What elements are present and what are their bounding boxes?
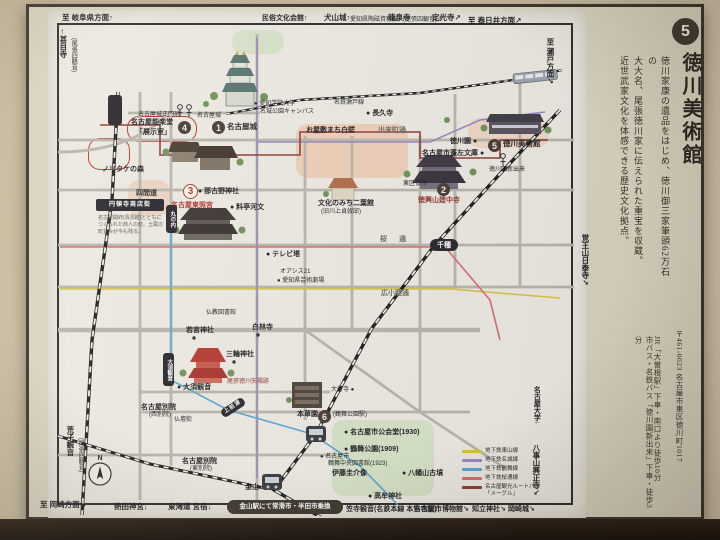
numbered-spot-badge: 6 bbox=[318, 410, 331, 423]
map-label: 名古屋別院 bbox=[182, 458, 217, 465]
legend-line-swatch bbox=[462, 450, 482, 453]
map-label: ● 大須観音 bbox=[177, 384, 211, 391]
photo-of-information-sign: N 至 岐阜県方面↑民俗文化会館↑犬山城↑愛知県陶磁資料館↗龍泉寺(尾張四観音)… bbox=[0, 0, 720, 540]
map-label: 尾張徳川矢場跡 bbox=[227, 379, 269, 385]
panel-title: 徳川美術館 bbox=[676, 52, 705, 167]
legend-line-swatch bbox=[462, 459, 482, 462]
toshogu-shrine-illustration bbox=[178, 208, 238, 240]
map-label: 至 岡崎方面↘ bbox=[40, 501, 86, 509]
map-label: 仏教図書館 bbox=[206, 310, 236, 316]
legend-row: 名古屋観光ルートバス 「メーグル」 bbox=[462, 484, 540, 498]
legend-label: 地下鉄鶴舞線 bbox=[485, 466, 518, 473]
map-label: 桜 通 bbox=[380, 236, 411, 243]
train-station-icon-kanayama bbox=[262, 474, 282, 490]
map-label: ● 那古野神社 bbox=[198, 188, 239, 195]
map-label: 熱田神宮↓ bbox=[114, 503, 148, 511]
panel-description-line-3: 近世武家文化を体感できる歴史文化拠点。 bbox=[618, 56, 631, 286]
legend-label: 地下鉄東山線 bbox=[485, 448, 518, 455]
noh-theater-illustration bbox=[168, 142, 238, 170]
osu-kannon-illustration bbox=[188, 348, 228, 383]
map-label: 覚王山日泰寺↗ bbox=[581, 234, 589, 285]
map-label: (西別院) bbox=[149, 412, 171, 418]
map-label: ● 料亭河文 bbox=[230, 204, 264, 211]
map-label: (東別院) bbox=[190, 466, 212, 472]
map-label: 名古屋開府(清須越)とともに bbox=[98, 216, 161, 221]
map-label: 伊藤圭介像 bbox=[332, 470, 367, 477]
map-label: 名古屋東照宮 bbox=[171, 202, 213, 209]
legend-row: 地下鉄東山線 bbox=[462, 448, 518, 455]
station-plate: 金山駅にて常滑市・半田市乗換 bbox=[227, 500, 343, 514]
legend-line-swatch bbox=[462, 477, 482, 480]
map-label: ←甚目寺 bbox=[59, 28, 67, 58]
station-plate: 丸の内 bbox=[166, 205, 177, 233]
map-label: 徳興山建中寺 bbox=[418, 197, 460, 204]
legend-label: 地下鉄桜通線 bbox=[485, 475, 518, 482]
numbered-spot-badge: 2 bbox=[437, 183, 450, 196]
map-label: 出来町通 bbox=[378, 127, 406, 134]
map-label: (尾張四観音) bbox=[77, 438, 83, 472]
map-label: ● 八幡山古墳 bbox=[402, 470, 443, 477]
map-label: ● 名古屋市公会堂(1930) bbox=[344, 429, 419, 436]
legend-line-swatch bbox=[462, 468, 482, 471]
legend-label: 名古屋観光ルートバス 「メーグル」 bbox=[485, 484, 540, 498]
map-label: ● 名古屋市 bbox=[320, 454, 349, 460]
map-label: ● 高牟神社 bbox=[368, 493, 402, 500]
map-label: お屋敷まち白壁 bbox=[306, 127, 355, 134]
map-label: 徳川美術館 bbox=[503, 140, 541, 148]
panel-description-line-1: 徳川家康の遺品をはじめ、徳川御三家筆頭62万石の bbox=[646, 56, 672, 286]
map-label: 名古屋市博物館↘ bbox=[414, 506, 469, 513]
map-label: (尾張四観音) bbox=[70, 38, 76, 72]
map-label: 大行寺 ● bbox=[331, 387, 354, 393]
map-label: 名城公園キャンパス bbox=[260, 109, 314, 115]
map-label: 至 春日井方面↗ bbox=[468, 17, 521, 25]
panel-description-line-2: 大大名、尾張徳川家に伝えられた重宝を収蔵。 bbox=[632, 56, 645, 286]
map-label: 名鉄瀬戸線 bbox=[334, 100, 364, 106]
map-label: ● 鶴舞公園(1909) bbox=[344, 446, 398, 453]
numbered-spot-badge: 5 bbox=[488, 139, 501, 152]
map-label: 若宮神社 bbox=[186, 327, 214, 334]
compass-n-letter: N bbox=[97, 455, 102, 462]
futabakan-illustration bbox=[328, 178, 358, 200]
map-label: (旧川上貞奴邸) bbox=[321, 209, 361, 215]
map-label: 広小路通 bbox=[381, 290, 409, 297]
floor-shadow-band bbox=[0, 519, 720, 540]
map-label: 徳川園 ● bbox=[450, 138, 477, 145]
panel-access-line-2: 市バス・名鉄バス「徳川園新出来」下車・徒歩3分 bbox=[633, 336, 655, 516]
station-plate: 千種 bbox=[430, 239, 458, 251]
map-label: 岡崎城↘ bbox=[508, 506, 535, 513]
map-label: 徳川園新出来 bbox=[489, 167, 525, 173]
map-label: ● 愛知県芸術劇場 bbox=[277, 278, 324, 284]
map-label: 名古屋城正門前 bbox=[138, 112, 180, 118]
panel-address: 〒461-0023 名古屋市東区徳川町1017 bbox=[674, 330, 685, 510]
map-label: ● テレビ塔 bbox=[266, 251, 300, 258]
compass-icon: N bbox=[89, 455, 111, 485]
map-label: 定光寺↗ bbox=[432, 14, 461, 22]
map-label: 至 瀬戸方面↗ bbox=[546, 38, 554, 84]
map-label: 民俗文化会館↑ bbox=[262, 15, 308, 22]
map-label: 四間道 bbox=[136, 190, 157, 197]
numbered-spot-badge: 3 bbox=[183, 184, 198, 199]
map-label: 犬山城↑ bbox=[324, 14, 350, 22]
legend-label: 地下鉄名城線 bbox=[485, 457, 518, 464]
map-label: 町並みが今も残る。 bbox=[98, 230, 143, 235]
map-label: 東海道 宮宿↓ bbox=[168, 503, 211, 511]
nagoya-castle-illustration bbox=[222, 51, 258, 106]
sakuradori-line bbox=[60, 247, 500, 340]
station-plate: 円頓寺商店街 bbox=[96, 199, 164, 211]
map-label: 名古屋城 bbox=[227, 123, 257, 131]
map-label: 名古屋城 bbox=[197, 113, 221, 119]
legend-line-swatch bbox=[462, 486, 482, 489]
map-label: ノリタケの森 bbox=[102, 166, 144, 173]
train-station-icon-tsurumai bbox=[306, 426, 326, 442]
map-label: 至 岐阜県方面↑ bbox=[62, 14, 113, 22]
panel-number-badge: 5 bbox=[672, 18, 699, 45]
map-label: 名古屋大学↓ bbox=[533, 386, 540, 425]
map-label: 三輪神社 bbox=[226, 351, 254, 358]
map-label: 仏壇街 bbox=[174, 417, 192, 423]
map-label: 名古屋別院 bbox=[141, 404, 176, 411]
map-label: 金山 bbox=[245, 484, 259, 491]
legend-row: 地下鉄鶴舞線 bbox=[462, 466, 518, 473]
station-plate bbox=[108, 95, 122, 125]
map-label: 東区役所 bbox=[403, 181, 427, 187]
map-label: ● 愛知学院大学 bbox=[254, 101, 295, 107]
legend-row: 地下鉄桜通線 bbox=[462, 475, 518, 482]
tokugawa-museum-illustration bbox=[486, 114, 544, 134]
map-label: 知立神社↘ bbox=[472, 506, 506, 513]
legend-row: 地下鉄名城線 bbox=[462, 457, 518, 464]
map-label: 荒子観音 bbox=[66, 426, 74, 456]
map-label: 文化のみち二葉館 bbox=[318, 200, 374, 207]
map-label: (鶴舞公園駅) bbox=[333, 412, 367, 418]
map-label: ● 長久寺 bbox=[366, 110, 393, 117]
map-label: つくられた商人の町。土蔵の bbox=[98, 223, 163, 228]
public-hall-illustration bbox=[292, 382, 322, 408]
map-label: 名古屋能楽堂 bbox=[131, 119, 173, 126]
numbered-spot-badge: 1 bbox=[212, 121, 225, 134]
map-label: 本草園 bbox=[297, 411, 318, 418]
map-label: オアシス21 bbox=[280, 269, 310, 275]
numbered-spot-badge: 4 bbox=[178, 121, 191, 134]
map-label: 白林寺 bbox=[252, 324, 273, 331]
station-plate: 大須観音 bbox=[163, 353, 174, 386]
map-label: 「展示室」 bbox=[136, 129, 171, 136]
map-label: 鶴舞中央図書館(1923) bbox=[328, 461, 387, 467]
map-label: 名古屋市蓬左文庫 ● bbox=[422, 150, 484, 157]
